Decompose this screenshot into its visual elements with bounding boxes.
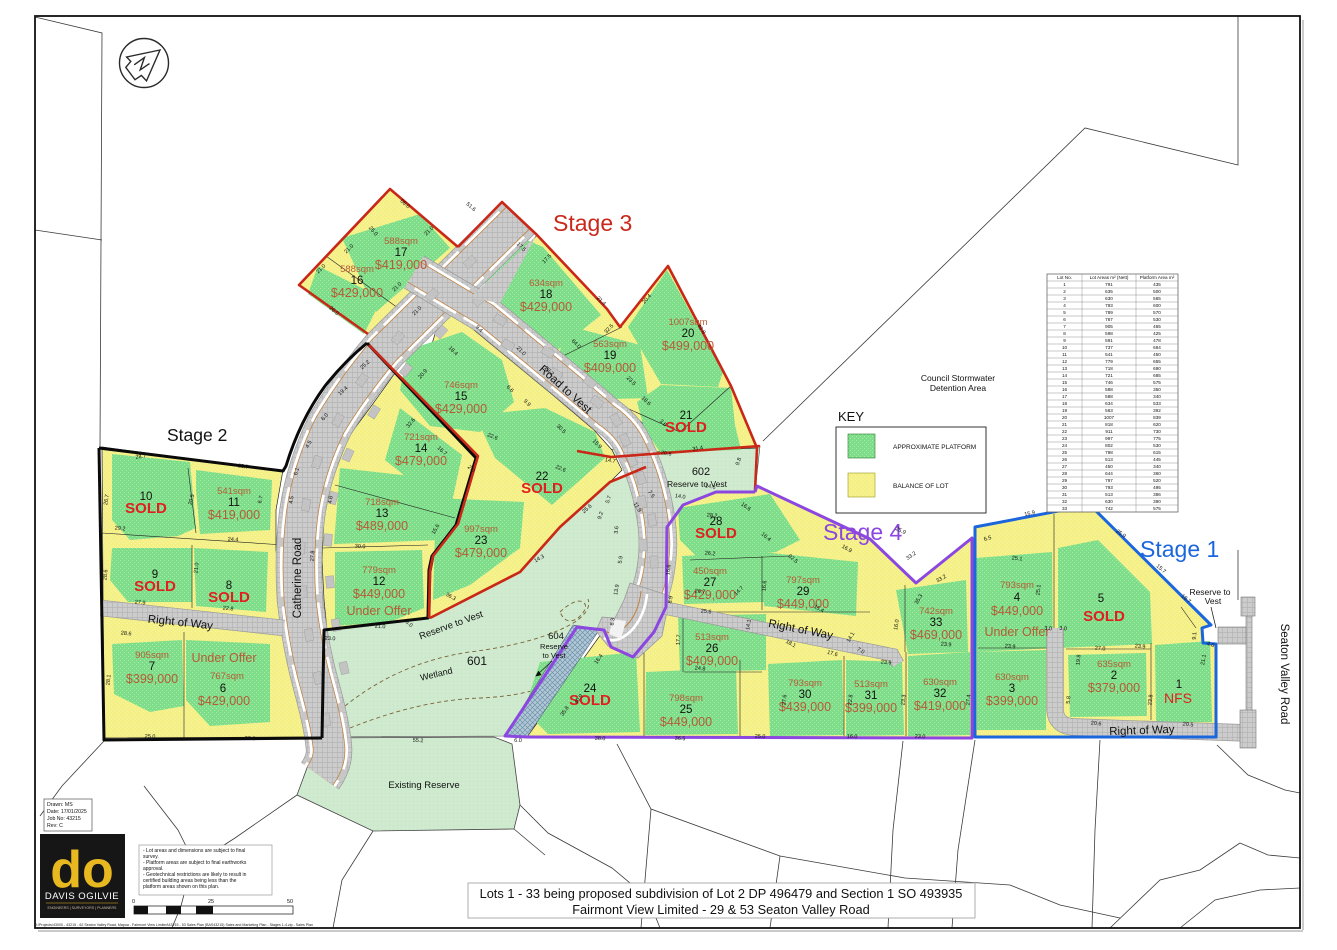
svg-text:23: 23 xyxy=(1062,436,1068,441)
svg-text:1007: 1007 xyxy=(1104,415,1115,420)
svg-text:3.0: 3.0 xyxy=(1059,626,1067,633)
svg-text:435: 435 xyxy=(1153,282,1161,287)
svg-text:Under Offer: Under Offer xyxy=(984,625,1049,639)
svg-text:30.0: 30.0 xyxy=(355,544,366,551)
svg-text:29.6: 29.6 xyxy=(245,736,256,743)
svg-text:Under Offer: Under Offer xyxy=(346,604,411,618)
svg-text:615: 615 xyxy=(1153,450,1161,455)
svg-text:27: 27 xyxy=(1062,464,1068,469)
svg-text:730: 730 xyxy=(1153,429,1161,434)
svg-text:23.9: 23.9 xyxy=(880,660,891,667)
svg-text:635sqm: 635sqm xyxy=(1097,659,1131,670)
svg-text:25.0: 25.0 xyxy=(755,734,766,741)
svg-text:767sqm: 767sqm xyxy=(210,671,244,682)
svg-text:478: 478 xyxy=(1153,338,1161,343)
svg-text:31: 31 xyxy=(1062,492,1068,497)
svg-text:664: 664 xyxy=(1153,345,1161,350)
svg-text:793sqm: 793sqm xyxy=(788,678,822,689)
svg-text:Fairmont View Limited - 29 & 5: Fairmont View Limited - 29 & 53 Seaton V… xyxy=(572,902,870,917)
svg-text:767: 767 xyxy=(1105,317,1113,322)
svg-text:Stage 2: Stage 2 xyxy=(167,425,227,445)
svg-text:13: 13 xyxy=(1062,366,1068,371)
svg-text:I:\Projects\43000 - 43215 - 62: I:\Projects\43000 - 43215 - 62 Seaton Va… xyxy=(36,923,313,927)
svg-text:to Vest: to Vest xyxy=(543,651,567,660)
svg-text:Lot Areas m² (Nett): Lot Areas m² (Nett) xyxy=(1090,275,1129,280)
svg-text:Rev: C: Rev: C xyxy=(47,823,63,829)
svg-text:ENGINEERS | SURVEYORS | PL: ENGINEERS | SURVEYORS | PLANNERS xyxy=(48,906,118,910)
svg-text:16.6: 16.6 xyxy=(666,564,673,575)
svg-text:18: 18 xyxy=(1062,401,1068,406)
svg-text:21.0: 21.0 xyxy=(194,562,201,573)
svg-text:533: 533 xyxy=(1153,401,1161,406)
svg-text:DAVIS OGILVIE: DAVIS OGILVIE xyxy=(45,891,119,902)
svg-text:15: 15 xyxy=(1062,380,1068,385)
svg-text:23.9: 23.9 xyxy=(940,642,951,649)
svg-text:25.1: 25.1 xyxy=(1036,584,1043,595)
svg-text:465: 465 xyxy=(1153,324,1161,329)
svg-text:38.0: 38.0 xyxy=(595,736,606,743)
svg-text:839: 839 xyxy=(1153,415,1161,420)
svg-text:$429,000: $429,000 xyxy=(520,300,572,314)
svg-text:Under Offer: Under Offer xyxy=(191,651,256,665)
svg-text:520: 520 xyxy=(1153,478,1161,483)
svg-text:563: 563 xyxy=(1105,408,1113,413)
svg-text:541sqm: 541sqm xyxy=(217,486,251,497)
svg-text:685: 685 xyxy=(1153,373,1161,378)
svg-text:513: 513 xyxy=(1105,492,1113,497)
svg-text:588sqm: 588sqm xyxy=(384,236,418,247)
svg-text:27.0: 27.0 xyxy=(1094,646,1105,653)
svg-text:27.9: 27.9 xyxy=(134,599,145,606)
svg-text:26: 26 xyxy=(1062,457,1068,462)
svg-text:591: 591 xyxy=(1105,338,1113,343)
svg-text:6.0: 6.0 xyxy=(514,738,522,744)
svg-text:20.5: 20.5 xyxy=(1182,722,1193,729)
svg-text:644: 644 xyxy=(1105,471,1113,476)
svg-text:Seaton Valley Road: Seaton Valley Road xyxy=(1278,624,1290,725)
svg-text:8: 8 xyxy=(1063,331,1066,336)
svg-text:392: 392 xyxy=(1153,408,1161,413)
svg-text:775: 775 xyxy=(1153,436,1161,441)
svg-text:4: 4 xyxy=(1063,303,1066,308)
svg-text:655: 655 xyxy=(1153,359,1161,364)
svg-text:23.8: 23.8 xyxy=(1148,694,1155,705)
svg-text:23.9: 23.9 xyxy=(1004,644,1015,651)
svg-text:APPROXIMATE PLATFORM: APPROXIMATE PLATFORM xyxy=(893,444,976,451)
svg-text:27.4: 27.4 xyxy=(966,694,973,705)
svg-text:601: 601 xyxy=(467,654,487,668)
svg-text:36.5: 36.5 xyxy=(675,736,686,743)
svg-text:SOLD: SOLD xyxy=(665,419,707,436)
svg-text:Lots 1 - 33 being proposed sub: Lots 1 - 33 being proposed subdivision o… xyxy=(480,886,963,901)
svg-text:530: 530 xyxy=(1153,317,1161,322)
svg-text:575: 575 xyxy=(1153,506,1161,511)
svg-text:$429,000: $429,000 xyxy=(435,402,487,416)
svg-text:21: 21 xyxy=(1062,422,1068,427)
svg-text:997sqm: 997sqm xyxy=(464,524,498,535)
svg-text:598: 598 xyxy=(1105,331,1113,336)
svg-text:KEY: KEY xyxy=(838,409,864,424)
svg-text:SOLD: SOLD xyxy=(125,500,167,517)
svg-text:16: 16 xyxy=(1062,387,1068,392)
svg-text:513sqm: 513sqm xyxy=(695,632,729,643)
svg-text:802: 802 xyxy=(1105,443,1113,448)
svg-text:10: 10 xyxy=(1062,345,1068,350)
svg-text:Stage 4: Stage 4 xyxy=(823,519,902,545)
svg-text:3.0: 3.0 xyxy=(1044,626,1052,633)
svg-text:340: 340 xyxy=(1153,464,1161,469)
svg-text:$419,000: $419,000 xyxy=(375,258,427,272)
svg-text:platform areas shown on this p: platform areas shown on this plan. xyxy=(143,884,219,890)
svg-text:25.0: 25.0 xyxy=(145,734,156,741)
svg-text:541: 541 xyxy=(1105,352,1113,357)
svg-text:17: 17 xyxy=(1062,394,1068,399)
svg-text:20.6: 20.6 xyxy=(1090,721,1101,728)
svg-text:$469,000: $469,000 xyxy=(910,628,962,642)
svg-text:23.3: 23.3 xyxy=(901,694,908,705)
svg-text:27.8: 27.8 xyxy=(310,550,317,561)
svg-text:0: 0 xyxy=(132,899,135,905)
svg-text:SOLD: SOLD xyxy=(208,589,250,606)
svg-text:350: 350 xyxy=(1153,387,1161,392)
svg-text:793: 793 xyxy=(1105,485,1113,490)
svg-text:$379,000: $379,000 xyxy=(1088,681,1140,695)
svg-text:19: 19 xyxy=(1062,408,1068,413)
svg-text:Stage 1: Stage 1 xyxy=(1140,536,1219,562)
svg-text:797: 797 xyxy=(1105,478,1113,483)
svg-text:Detention Area: Detention Area xyxy=(930,383,987,393)
svg-text:450sqm: 450sqm xyxy=(693,566,727,577)
svg-text:55.2: 55.2 xyxy=(413,738,424,744)
svg-text:793sqm: 793sqm xyxy=(1000,580,1034,591)
svg-text:32: 32 xyxy=(1062,499,1068,504)
svg-text:3.6: 3.6 xyxy=(614,526,621,534)
svg-text:997: 997 xyxy=(1105,436,1113,441)
svg-text:$399,000: $399,000 xyxy=(126,672,178,686)
svg-text:798sqm: 798sqm xyxy=(669,693,703,704)
svg-text:Lot No.: Lot No. xyxy=(1057,275,1072,280)
svg-text:450: 450 xyxy=(1153,352,1161,357)
svg-text:604: 604 xyxy=(548,631,564,642)
svg-text:630sqm: 630sqm xyxy=(923,677,957,688)
svg-text:14: 14 xyxy=(1062,373,1068,378)
svg-text:NFS: NFS xyxy=(1164,690,1192,706)
svg-text:588: 588 xyxy=(1105,394,1113,399)
svg-text:$429,000: $429,000 xyxy=(331,286,383,300)
svg-text:Drawn: MS: Drawn: MS xyxy=(47,802,73,808)
svg-text:SOLD: SOLD xyxy=(134,578,176,595)
svg-text:7: 7 xyxy=(1063,324,1066,329)
svg-text:Council Stormwater: Council Stormwater xyxy=(921,373,995,383)
svg-text:$409,000: $409,000 xyxy=(584,361,636,375)
svg-text:746: 746 xyxy=(1105,380,1113,385)
svg-text:565: 565 xyxy=(1153,296,1161,301)
svg-text:340: 340 xyxy=(1153,394,1161,399)
svg-text:28.1: 28.1 xyxy=(105,674,112,685)
svg-text:905sqm: 905sqm xyxy=(135,650,169,661)
svg-text:386: 386 xyxy=(1153,492,1161,497)
svg-text:Job No: 43215: Job No: 43215 xyxy=(47,816,81,822)
svg-text:602: 602 xyxy=(692,466,710,478)
svg-text:24.8: 24.8 xyxy=(694,666,705,673)
svg-text:2: 2 xyxy=(1063,289,1066,294)
svg-text:425: 425 xyxy=(1153,331,1161,336)
svg-text:634sqm: 634sqm xyxy=(529,278,563,289)
svg-text:5.8: 5.8 xyxy=(1066,696,1073,704)
svg-text:500: 500 xyxy=(1153,289,1161,294)
svg-text:26.7: 26.7 xyxy=(694,589,705,596)
svg-text:$409,000: $409,000 xyxy=(686,654,738,668)
svg-text:$479,000: $479,000 xyxy=(395,454,447,468)
svg-text:29: 29 xyxy=(1062,478,1068,483)
svg-text:Catherine Road: Catherine Road xyxy=(292,538,304,619)
svg-text:$449,000: $449,000 xyxy=(353,587,405,601)
svg-text:22: 22 xyxy=(1062,429,1068,434)
svg-text:11: 11 xyxy=(1062,352,1067,357)
svg-text:$429,000: $429,000 xyxy=(198,694,250,708)
svg-text:600: 600 xyxy=(1153,303,1161,308)
svg-text:$489,000: $489,000 xyxy=(356,519,408,533)
svg-text:$429,000: $429,000 xyxy=(684,588,736,602)
svg-text:779sqm: 779sqm xyxy=(362,565,396,576)
svg-text:28.6: 28.6 xyxy=(102,569,109,580)
svg-text:Reserve to Vest: Reserve to Vest xyxy=(667,479,728,489)
svg-text:513: 513 xyxy=(1105,457,1113,462)
svg-text:30: 30 xyxy=(1062,485,1068,490)
svg-text:4: 4 xyxy=(1014,592,1021,604)
svg-text:Date: 17/01/2025: Date: 17/01/2025 xyxy=(47,809,87,815)
svg-text:911: 911 xyxy=(1105,429,1113,434)
svg-text:23.0: 23.0 xyxy=(325,636,336,643)
svg-text:779: 779 xyxy=(1105,359,1113,364)
svg-text:28.2: 28.2 xyxy=(706,513,717,520)
svg-text:SOLD: SOLD xyxy=(695,525,737,542)
svg-text:690: 690 xyxy=(1153,366,1161,371)
svg-text:360: 360 xyxy=(1153,471,1161,476)
svg-text:5: 5 xyxy=(1098,593,1104,605)
svg-text:9.1: 9.1 xyxy=(1192,632,1199,640)
svg-text:Reserve: Reserve xyxy=(540,642,568,651)
svg-text:$499,000: $499,000 xyxy=(662,339,714,353)
svg-text:620: 620 xyxy=(1153,422,1161,427)
svg-text:4.5: 4.5 xyxy=(289,496,296,504)
svg-text:22.8: 22.8 xyxy=(848,694,855,705)
svg-text:9: 9 xyxy=(1063,338,1066,343)
svg-text:3: 3 xyxy=(1063,296,1066,301)
svg-text:25.6: 25.6 xyxy=(700,609,711,616)
svg-text:742: 742 xyxy=(1105,506,1113,511)
svg-text:797sqm: 797sqm xyxy=(786,575,820,586)
svg-text:390: 390 xyxy=(1153,499,1161,504)
svg-text:$449,000: $449,000 xyxy=(991,604,1043,618)
svg-text:19.8: 19.8 xyxy=(1076,654,1083,665)
svg-text:28: 28 xyxy=(1062,471,1068,476)
svg-text:23.9: 23.9 xyxy=(1134,644,1145,651)
svg-text:BALANCE OF LOT: BALANCE OF LOT xyxy=(893,483,949,490)
svg-text:905: 905 xyxy=(1105,324,1113,329)
svg-text:$419,000: $419,000 xyxy=(208,508,260,522)
svg-text:6: 6 xyxy=(1063,317,1066,322)
svg-text:Stage 3: Stage 3 xyxy=(553,210,632,236)
svg-text:17.7: 17.7 xyxy=(676,634,683,645)
svg-text:12: 12 xyxy=(1062,359,1068,364)
svg-text:16.6: 16.6 xyxy=(762,580,769,591)
svg-text:5: 5 xyxy=(1063,310,1066,315)
svg-text:789: 789 xyxy=(1105,310,1113,315)
svg-text:$399,000: $399,000 xyxy=(986,694,1038,708)
svg-text:22.8: 22.8 xyxy=(222,605,233,612)
svg-text:1: 1 xyxy=(1063,282,1066,287)
svg-text:588sqm: 588sqm xyxy=(340,264,374,275)
svg-text:33: 33 xyxy=(1062,506,1068,511)
svg-text:563sqm: 563sqm xyxy=(593,339,627,350)
svg-text:29.2: 29.2 xyxy=(114,526,125,533)
svg-text:530: 530 xyxy=(1153,443,1161,448)
svg-text:25: 25 xyxy=(208,899,214,905)
svg-text:445: 445 xyxy=(1153,457,1161,462)
svg-text:721: 721 xyxy=(1105,373,1113,378)
svg-text:25.1: 25.1 xyxy=(1011,556,1022,563)
svg-text:495: 495 xyxy=(1153,485,1161,490)
svg-text:23.0: 23.0 xyxy=(915,734,926,741)
svg-text:27.6: 27.6 xyxy=(782,694,789,705)
svg-text:$449,000: $449,000 xyxy=(660,715,712,729)
svg-text:570: 570 xyxy=(1153,310,1161,315)
svg-text:721sqm: 721sqm xyxy=(404,432,438,443)
svg-text:630: 630 xyxy=(1105,499,1113,504)
svg-text:718sqm: 718sqm xyxy=(365,497,399,508)
svg-text:Platform Area m²: Platform Area m² xyxy=(1140,275,1175,280)
svg-text:737: 737 xyxy=(1105,345,1113,350)
svg-text:798: 798 xyxy=(1105,450,1113,455)
svg-text:630sqm: 630sqm xyxy=(995,672,1029,683)
svg-text:634: 634 xyxy=(1105,401,1113,406)
svg-text:24: 24 xyxy=(1062,443,1068,448)
svg-text:$419,000: $419,000 xyxy=(914,699,966,713)
svg-text:SOLD: SOLD xyxy=(1083,608,1125,625)
svg-text:50: 50 xyxy=(287,899,293,905)
svg-text:25: 25 xyxy=(1062,450,1068,455)
svg-text:Existing Reserve: Existing Reserve xyxy=(388,780,459,791)
svg-text:26.2: 26.2 xyxy=(704,551,715,558)
svg-text:16.0: 16.0 xyxy=(847,734,858,741)
svg-text:791: 791 xyxy=(1105,282,1113,287)
svg-text:SOLD: SOLD xyxy=(521,480,563,497)
svg-text:Vest: Vest xyxy=(1205,596,1222,606)
svg-text:746sqm: 746sqm xyxy=(444,380,478,391)
svg-text:24.4: 24.4 xyxy=(228,537,239,544)
svg-text:21.0: 21.0 xyxy=(375,624,386,631)
svg-text:513sqm: 513sqm xyxy=(854,679,888,690)
svg-text:635: 635 xyxy=(1105,289,1113,294)
svg-text:793: 793 xyxy=(1105,303,1113,308)
svg-text:575: 575 xyxy=(1153,380,1161,385)
svg-text:742sqm: 742sqm xyxy=(919,606,953,617)
svg-text:818: 818 xyxy=(1105,422,1113,427)
svg-text:Right of Way: Right of Way xyxy=(1109,724,1175,738)
svg-text:20: 20 xyxy=(1062,415,1068,420)
svg-text:630: 630 xyxy=(1105,296,1113,301)
svg-text:718: 718 xyxy=(1105,366,1113,371)
svg-text:450: 450 xyxy=(1105,464,1113,469)
svg-text:$479,000: $479,000 xyxy=(455,546,507,560)
svg-text:588: 588 xyxy=(1105,387,1113,392)
